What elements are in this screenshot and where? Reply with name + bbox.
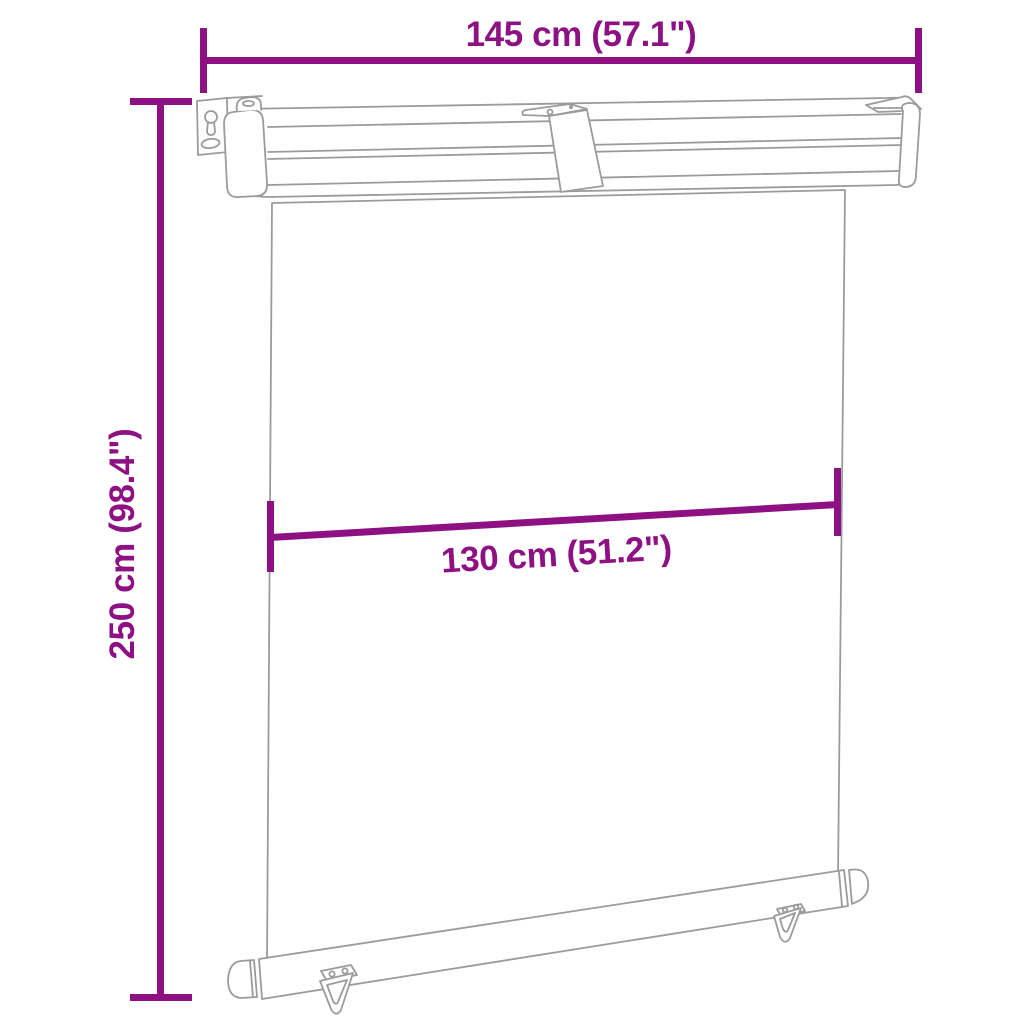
cassette-end-cap-right [899,103,920,187]
width-dimension-label: 145 cm (57.1") [466,15,697,54]
cassette-end-cap-left [224,110,267,197]
cassette [197,96,921,197]
height-dimension-label: 250 cm (98.4") [103,429,142,660]
height-dim-line [157,98,164,1001]
diagram-canvas: 145 cm (57.1") 250 cm (98.4") 130 cm (51… [0,0,1024,1024]
end-cap-left-ear [237,97,261,111]
width-dim-line [200,57,922,64]
fabric-panel [267,190,845,961]
product-dimension-diagram: 145 cm (57.1") 250 cm (98.4") 130 cm (51… [0,0,1024,1024]
